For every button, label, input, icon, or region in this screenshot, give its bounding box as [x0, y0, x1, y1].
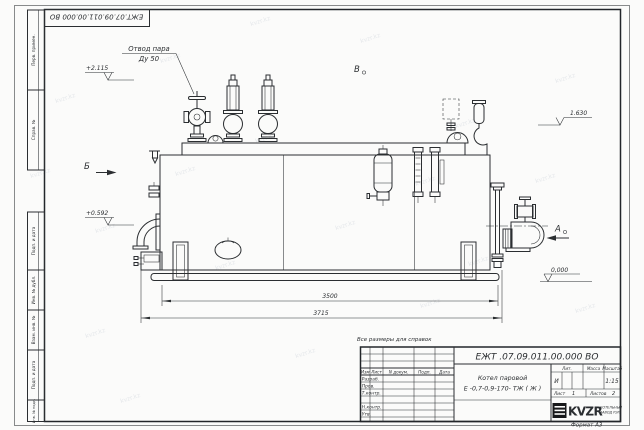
elevation-mark-0000: 0,000 [540, 267, 592, 282]
water-gauge-vessel [367, 145, 392, 206]
sheet-number: 1 [572, 391, 575, 397]
role-nkontr: Н.контр. [362, 404, 382, 410]
product-name-2: Е -0,7-0,9-170- ТЖ ( Ж ) [464, 386, 541, 393]
title-block-left-table: Изм Лист N докум. Подп. Дата Разраб. Про… [361, 347, 455, 422]
frame-field-label: Справ. № [31, 119, 36, 140]
drawing-sheet: kvzr.kz kvzr.kz kvzr.kz kvzr.kz kvzr.kz … [0, 0, 644, 430]
frame-field-label: Инв. № дубл. [31, 276, 36, 305]
sheets-total: 2 [612, 391, 615, 397]
doc-number-rotated: ЕЖТ.07.09.011.00.000 ВО [49, 13, 143, 21]
steam-outlet-size: Ду 50 [138, 55, 159, 63]
role-razrab: Разраб. [362, 376, 379, 382]
mass-label: Масса [587, 366, 601, 371]
elevation-value: 1.630 [570, 110, 587, 117]
view-marker-b: Б [84, 162, 117, 175]
safety-valve-2 [259, 75, 278, 142]
frame-field-label: Перв. примен. [31, 34, 36, 65]
col-data: Дата [438, 369, 450, 374]
top-doc-number-stamp: ЕЖТ.07.09.011.00.000 ВО [45, 10, 150, 27]
drain-cock [149, 151, 160, 163]
frame-left-fields: Перв. примен. Справ. № Подп. и дата Инв.… [28, 10, 45, 423]
logo-subtext-2: ЗАВОД РЭП [600, 411, 621, 415]
safety-valve-1 [224, 75, 243, 142]
elevation-mark-1630: 1.630 [538, 110, 592, 125]
view-letter: А [554, 225, 561, 235]
lifting-lug-rear [447, 133, 468, 144]
steam-outlet-label: Отвод пара [128, 45, 169, 53]
manhole [215, 238, 241, 260]
rear-pipe-column [491, 183, 504, 268]
product-name-1: Котел паровой [478, 375, 527, 382]
title-block: Изм Лист N докум. Подп. Дата Разраб. Про… [361, 347, 623, 422]
col-podp: Подп. [418, 369, 431, 374]
col-izm: Изм [361, 369, 370, 374]
sheet-label: Лист [553, 391, 566, 397]
lit-value: И [554, 378, 559, 385]
technical-drawing: Перв. примен. Справ. № Подп. и дата Инв.… [0, 0, 644, 430]
pressure-gauge-siphon [473, 101, 488, 156]
col-list: Лист [370, 369, 382, 374]
dimension-3500: 3500 [162, 285, 498, 306]
dimension-value: 3500 [322, 293, 337, 300]
view-marker-a: А [547, 225, 570, 241]
steam-outlet-callout: Отвод пара Ду 50 [122, 45, 194, 94]
steam-outlet-valve [184, 91, 210, 142]
role-utv: Утв. [362, 411, 371, 417]
view-letter: В [354, 65, 360, 75]
view-marker-v: В [354, 65, 366, 75]
lit-label: Лит. [561, 366, 572, 371]
lifting-lug-front [208, 136, 223, 144]
role-prov: Пров. [362, 383, 375, 389]
dimension-3715: 3715 [141, 252, 502, 323]
title-doc-number: ЕЖТ .07.09.011.00.000 ВО [476, 353, 599, 363]
logo-text: KVZR [568, 405, 602, 419]
level-indicator-columns [413, 148, 444, 204]
company-logo: KVZR КОТЕЛЬНЫЙ ЗАВОД РЭП [553, 403, 623, 419]
hidden-unit-dashed [443, 99, 459, 131]
role-tkontr: Т.контр. [362, 390, 381, 396]
elevation-mark-2115: +2.115 [85, 65, 134, 80]
logo-subtext-1: КОТЕЛЬНЫЙ [600, 405, 622, 410]
scale-value: 1:15 [605, 378, 619, 385]
frame-field-label: Подп. и дата [31, 226, 36, 255]
skid-base [151, 242, 499, 281]
elevation-value: +0.592 [86, 210, 108, 217]
burner-assembly [133, 214, 162, 270]
dimension-value: 3715 [313, 310, 328, 317]
front-fittings [149, 182, 159, 197]
sheets-label: Листов [589, 391, 607, 397]
col-doc: N докум. [389, 369, 408, 374]
view-letter: Б [84, 162, 90, 172]
boiler-side-view [133, 75, 548, 281]
elevation-mark-0592: +0.592 [85, 210, 134, 225]
frame-field-label: Взам. инв. № [31, 315, 36, 344]
scale-label: Масштаб [602, 366, 622, 371]
reference-note: Все размеры для справок [357, 337, 432, 343]
frame-field-label: Инв. № подл. [32, 399, 36, 424]
title-block-right: Лит. Масса Масштаб И 1:15 Лист 1 Листов … [551, 364, 623, 422]
elevation-value: +2.115 [86, 65, 108, 72]
frame-field-label: Подп. и дата [31, 360, 36, 389]
boiler-shell [160, 143, 490, 270]
elevation-value: 0,000 [551, 267, 568, 274]
product-name-cell: Котел паровой Е -0,7-0,9-170- ТЖ ( Ж ) [454, 375, 551, 400]
format-label: Формат А3 [571, 423, 603, 429]
